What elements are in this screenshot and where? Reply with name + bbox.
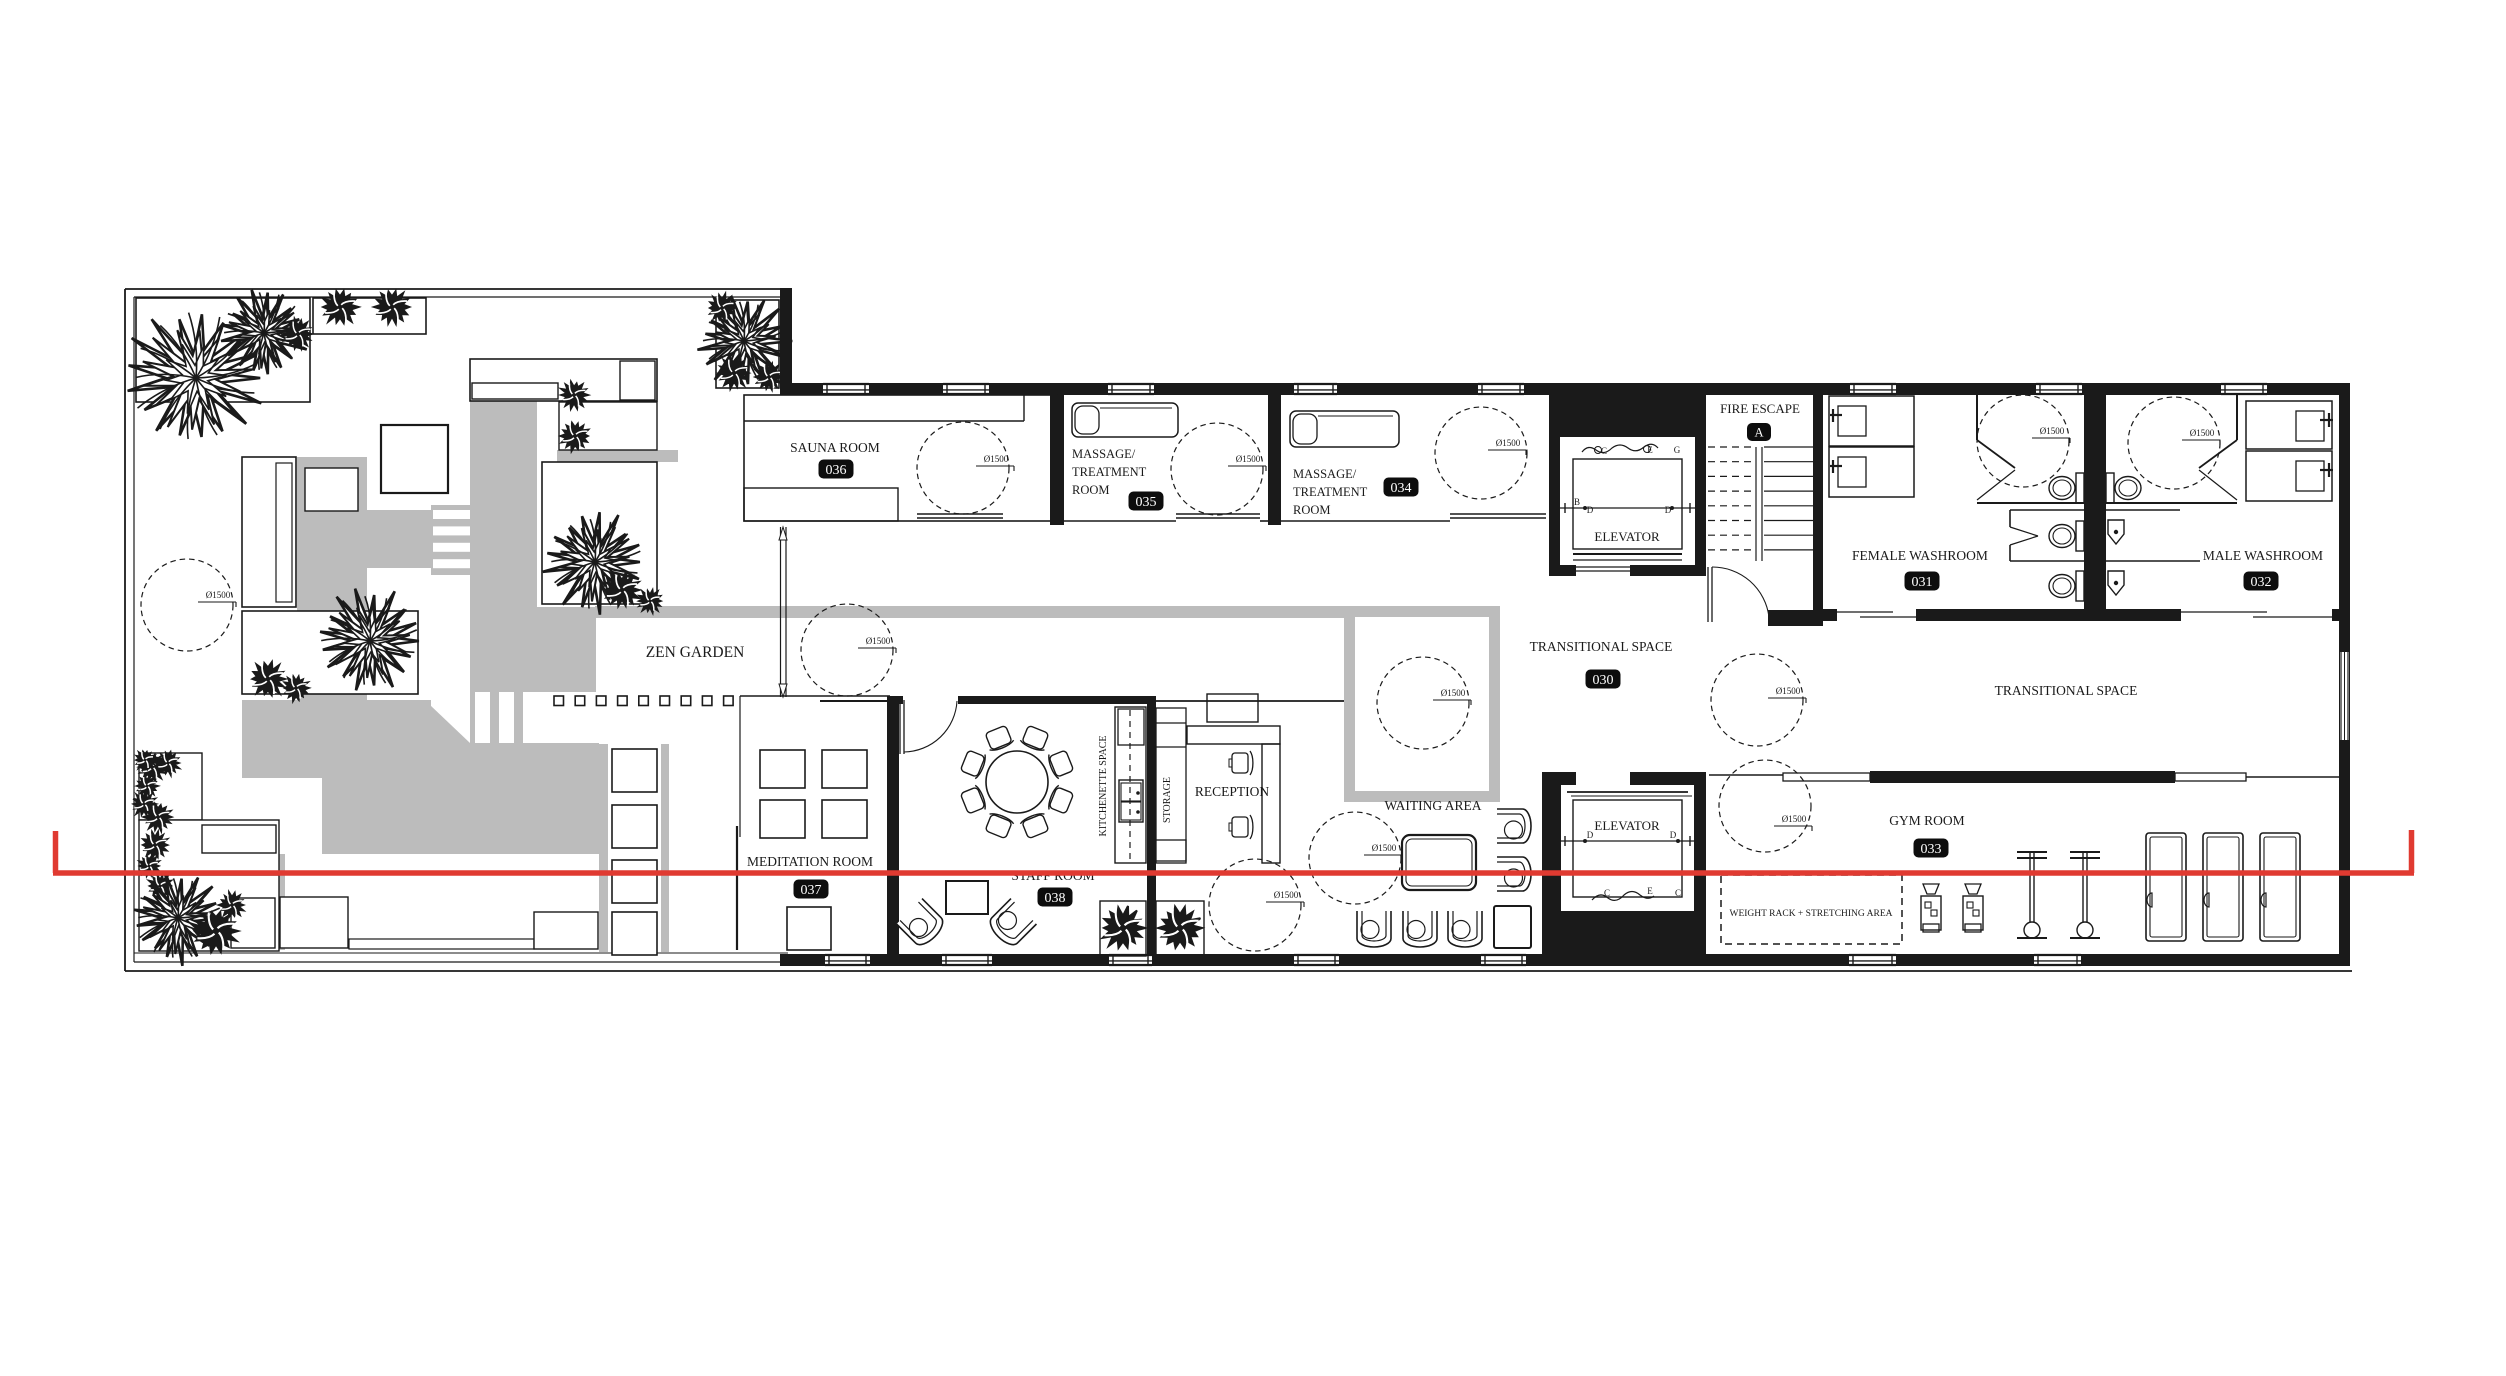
svg-text:D: D bbox=[1587, 505, 1594, 515]
svg-text:ZEN GARDEN: ZEN GARDEN bbox=[646, 644, 745, 661]
svg-text:E: E bbox=[1647, 886, 1653, 896]
svg-text:C: C bbox=[1601, 446, 1607, 456]
svg-text:WEIGHT RACK + STRETCHING AREA: WEIGHT RACK + STRETCHING AREA bbox=[1730, 909, 1893, 919]
svg-text:STORAGE: STORAGE bbox=[1162, 777, 1173, 823]
svg-text:033: 033 bbox=[1921, 842, 1942, 857]
svg-text:GYM ROOM: GYM ROOM bbox=[1889, 813, 1964, 828]
svg-text:MASSAGE/: MASSAGE/ bbox=[1293, 467, 1357, 481]
svg-text:MEDITATION ROOM: MEDITATION ROOM bbox=[747, 854, 873, 869]
svg-text:031: 031 bbox=[1912, 575, 1933, 590]
svg-text:Ø1500: Ø1500 bbox=[1236, 454, 1261, 464]
svg-text:MALE WASHROOM: MALE WASHROOM bbox=[2203, 548, 2323, 563]
svg-text:Ø1500: Ø1500 bbox=[1441, 688, 1466, 698]
svg-text:032: 032 bbox=[2251, 575, 2272, 590]
svg-text:ROOM: ROOM bbox=[1293, 503, 1331, 517]
svg-text:C: C bbox=[1604, 888, 1610, 898]
svg-text:D: D bbox=[1587, 830, 1594, 840]
svg-text:Ø1500: Ø1500 bbox=[2190, 428, 2215, 438]
svg-text:ELEVATOR: ELEVATOR bbox=[1594, 529, 1660, 544]
svg-text:RECEPTION: RECEPTION bbox=[1195, 784, 1270, 799]
svg-text:037: 037 bbox=[801, 883, 822, 898]
svg-text:Ø1500: Ø1500 bbox=[1274, 890, 1299, 900]
svg-text:038: 038 bbox=[1045, 891, 1066, 906]
svg-text:D: D bbox=[1670, 830, 1677, 840]
svg-text:B: B bbox=[1574, 497, 1580, 507]
svg-text:C: C bbox=[1675, 888, 1681, 898]
svg-text:FEMALE WASHROOM: FEMALE WASHROOM bbox=[1852, 548, 1988, 563]
svg-text:SAUNA ROOM: SAUNA ROOM bbox=[790, 440, 880, 455]
svg-text:WAITING AREA: WAITING AREA bbox=[1384, 798, 1481, 813]
svg-text:E: E bbox=[1647, 445, 1653, 455]
svg-text:Ø1500: Ø1500 bbox=[1776, 686, 1801, 696]
svg-text:G: G bbox=[1674, 445, 1681, 455]
svg-text:ROOM: ROOM bbox=[1072, 483, 1110, 497]
svg-text:Ø1500: Ø1500 bbox=[1496, 438, 1521, 448]
svg-text:TRANSITIONAL SPACE: TRANSITIONAL SPACE bbox=[1995, 683, 2138, 698]
svg-text:030: 030 bbox=[1593, 673, 1614, 688]
svg-text:TREATMENT: TREATMENT bbox=[1072, 465, 1147, 479]
svg-text:Ø1500: Ø1500 bbox=[984, 454, 1009, 464]
svg-text:ELEVATOR: ELEVATOR bbox=[1594, 818, 1660, 833]
svg-text:Ø1500: Ø1500 bbox=[866, 636, 891, 646]
svg-text:FIRE ESCAPE: FIRE ESCAPE bbox=[1720, 401, 1800, 416]
svg-text:036: 036 bbox=[826, 463, 847, 478]
svg-text:MASSAGE/: MASSAGE/ bbox=[1072, 447, 1136, 461]
svg-text:KITCHENETTE SPACE: KITCHENETTE SPACE bbox=[1098, 735, 1109, 836]
svg-text:Ø1500: Ø1500 bbox=[206, 590, 231, 600]
svg-text:TREATMENT: TREATMENT bbox=[1293, 485, 1368, 499]
svg-text:034: 034 bbox=[1391, 481, 1412, 496]
svg-text:Ø1500: Ø1500 bbox=[2040, 426, 2065, 436]
svg-text:Ø1500: Ø1500 bbox=[1782, 814, 1807, 824]
svg-text:A: A bbox=[1754, 426, 1763, 440]
svg-text:TRANSITIONAL SPACE: TRANSITIONAL SPACE bbox=[1530, 639, 1673, 654]
svg-text:Ø1500: Ø1500 bbox=[1372, 843, 1397, 853]
svg-text:035: 035 bbox=[1136, 495, 1157, 510]
